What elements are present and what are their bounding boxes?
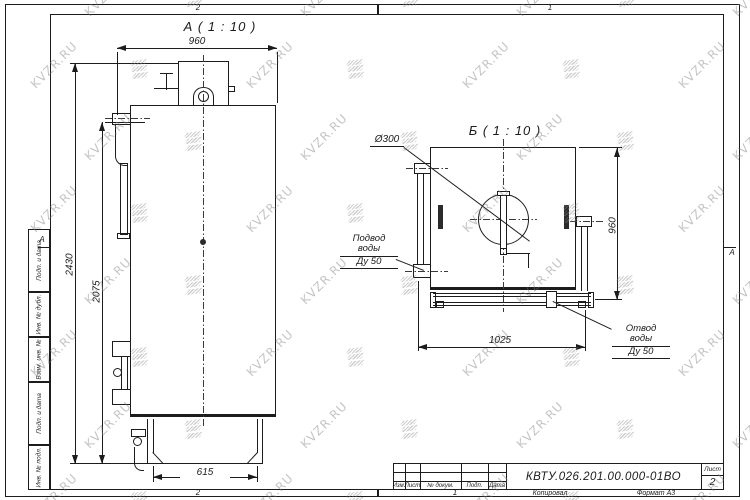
damper-lever <box>160 73 173 74</box>
base-end-cap <box>588 292 594 308</box>
dim-arrow <box>418 344 427 350</box>
extension-line <box>105 122 145 123</box>
dim-line <box>117 48 277 49</box>
base-inner-line <box>257 419 258 453</box>
hinge-pin <box>121 356 128 390</box>
pipe-centerline <box>406 168 448 169</box>
zone-tick <box>377 4 379 14</box>
zone-label: А <box>726 249 738 258</box>
pipe-line <box>417 174 418 264</box>
extension-line <box>117 52 118 115</box>
extension-line <box>257 466 258 482</box>
ash-latch <box>131 429 146 437</box>
base-inner-line <box>153 419 154 453</box>
header-podp: Подп. <box>461 481 488 490</box>
zone-label: 1 <box>542 4 558 13</box>
grid-line <box>393 472 506 473</box>
stamp-box: Взам. инв. № <box>28 337 50 382</box>
damper-rod-cap <box>497 191 510 196</box>
stamp-label: Инв. № дубл. <box>36 295 43 335</box>
base-rail <box>433 296 591 297</box>
base-outline <box>147 463 263 464</box>
hinge-knob <box>113 368 122 377</box>
dim-line <box>418 347 585 348</box>
ash-latch-hook <box>134 447 144 471</box>
base-foot <box>578 301 586 308</box>
inlet-note-line1: Подвод воды <box>340 234 398 257</box>
outlet-pipe-end <box>546 291 557 308</box>
zone-label: 2 <box>190 489 206 498</box>
stamp-box: Подп. и дата <box>28 382 50 445</box>
stamp-label: Подп. и дата <box>36 240 43 281</box>
outlet-note-line1: Отвод воды <box>612 324 670 347</box>
dim-text-height-total: 2430 <box>65 245 76 285</box>
door-handle-hook <box>115 125 128 166</box>
dim-arrow <box>153 474 162 480</box>
dim-text-base: 615 <box>180 467 230 478</box>
extension-line <box>70 63 178 64</box>
dim-arrow <box>248 474 257 480</box>
pipe-line <box>581 227 582 291</box>
dim-arrow <box>117 45 126 51</box>
pipe-line <box>423 174 424 264</box>
hinge-bracket <box>112 389 131 405</box>
damper-crank <box>506 253 530 254</box>
stamp-label: Инв. № подл. <box>36 447 43 487</box>
outlet-note-line2: Ду 50 <box>612 347 670 359</box>
dim-text-rear-width: 1025 <box>465 335 535 346</box>
extension-line <box>277 52 278 103</box>
zone-tick <box>377 490 379 497</box>
sheet-number: 2 <box>701 475 724 490</box>
damper-crank <box>528 253 529 268</box>
chimney-dia-label: Ø300 <box>370 134 404 147</box>
stamp-box: Инв. № подл. <box>28 445 50 490</box>
inlet-note: Подвод воды Ду 50 <box>340 234 398 269</box>
extension-line <box>70 463 147 464</box>
base-outline <box>147 419 148 464</box>
stamp-box: Подп. и дата <box>28 229 50 292</box>
latch-axis-centerline <box>105 118 150 119</box>
door-handle-cap <box>117 233 130 239</box>
dim-arrow <box>99 122 105 131</box>
dim-arrow <box>72 63 78 72</box>
inlet-note-line2: Ду 50 <box>340 257 398 269</box>
door-handle-bar <box>120 163 128 235</box>
ash-latch-knob <box>133 437 142 446</box>
extension-line <box>418 281 419 351</box>
base-rail <box>433 293 591 294</box>
header-data: Дата <box>488 481 506 490</box>
pipe-centerline <box>405 271 448 272</box>
pipe-line <box>587 227 588 291</box>
extension-line <box>153 466 154 482</box>
stamp-box: Инв. № дубл. <box>28 292 50 337</box>
outlet-note: Отвод воды Ду 50 <box>612 324 670 359</box>
extension-line <box>595 299 622 300</box>
dim-text-height-door: 2075 <box>92 272 103 312</box>
dim-text-width: 960 <box>160 36 234 47</box>
pipe-centerline <box>570 221 604 222</box>
base-outline <box>262 419 263 464</box>
base-foot <box>436 301 444 308</box>
drawing-sheet: 2 1 2 1 А А Подп. и дата Инв. № дубл. Вз… <box>0 0 750 500</box>
header-ndoc: № докум. <box>420 481 461 490</box>
zone-label: 2 <box>190 4 206 13</box>
bracket-bar <box>564 205 569 229</box>
damper-lever <box>154 88 179 89</box>
dim-arrow <box>99 455 105 464</box>
header-list: Лист <box>405 481 420 490</box>
base-rail <box>433 302 591 303</box>
view-a-label: А ( 1 : 10 ) <box>165 20 275 34</box>
zone-label: 1 <box>447 489 463 498</box>
sheet-label: Лист <box>701 463 724 475</box>
hinge-bracket <box>112 341 131 357</box>
copied-label: Копировал <box>515 490 585 498</box>
view-b-label: Б ( 1 : 10 ) <box>455 124 555 138</box>
format-label: Формат А3 <box>625 490 687 498</box>
stamp-label: Взам. инв. № <box>36 339 43 379</box>
center-point <box>200 239 206 245</box>
dim-arrow <box>576 344 585 350</box>
dim-text-rear-height: 960 <box>608 206 619 246</box>
dim-arrow <box>614 148 620 157</box>
base-rail <box>433 305 591 306</box>
header-izm: Изм. <box>393 481 405 490</box>
doc-number: КВТУ.026.201.00.000-01ВО <box>506 463 701 490</box>
dim-arrow <box>268 45 277 51</box>
door-latch <box>112 113 131 125</box>
stamp-label: Подп. и дата <box>36 393 43 434</box>
bracket-bar <box>438 205 443 229</box>
sensor-stub <box>228 86 235 92</box>
extension-line <box>579 147 622 148</box>
